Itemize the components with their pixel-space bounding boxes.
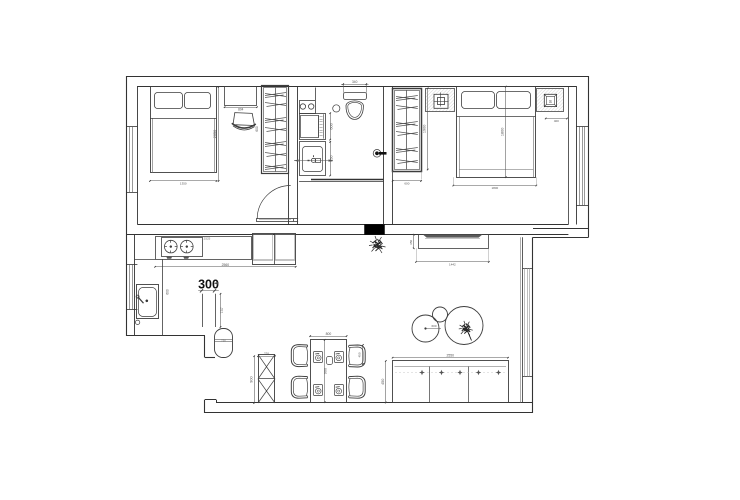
svg-text:600: 600: [165, 289, 169, 295]
svg-text:600: 600: [404, 181, 409, 185]
svg-text:1900: 1900: [423, 125, 427, 133]
svg-text:2550: 2550: [447, 354, 455, 358]
svg-text:1800: 1800: [501, 128, 505, 136]
svg-text:600: 600: [255, 126, 259, 132]
svg-text:340: 340: [352, 80, 358, 84]
svg-text:1350: 1350: [180, 182, 187, 186]
svg-text:600: 600: [330, 123, 334, 129]
svg-text:737: 737: [220, 307, 224, 313]
svg-text:900: 900: [323, 368, 327, 374]
svg-text:750: 750: [221, 338, 226, 342]
svg-text:2050: 2050: [213, 130, 217, 138]
svg-text:600: 600: [431, 324, 436, 328]
svg-text:276: 276: [264, 352, 269, 356]
svg-text:450: 450: [358, 352, 362, 357]
svg-text:804: 804: [238, 107, 244, 111]
svg-text:900: 900: [249, 376, 253, 382]
svg-text:2525: 2525: [204, 237, 211, 241]
svg-text:400: 400: [554, 119, 559, 123]
svg-text:2560: 2560: [222, 263, 230, 267]
svg-text:1442: 1442: [449, 262, 456, 266]
svg-text:1800: 1800: [491, 186, 498, 190]
svg-text:450: 450: [381, 379, 385, 385]
svg-text:800: 800: [326, 332, 332, 336]
svg-text:S: S: [549, 99, 552, 104]
svg-text:350: 350: [409, 239, 413, 244]
svg-text:650: 650: [330, 156, 334, 162]
